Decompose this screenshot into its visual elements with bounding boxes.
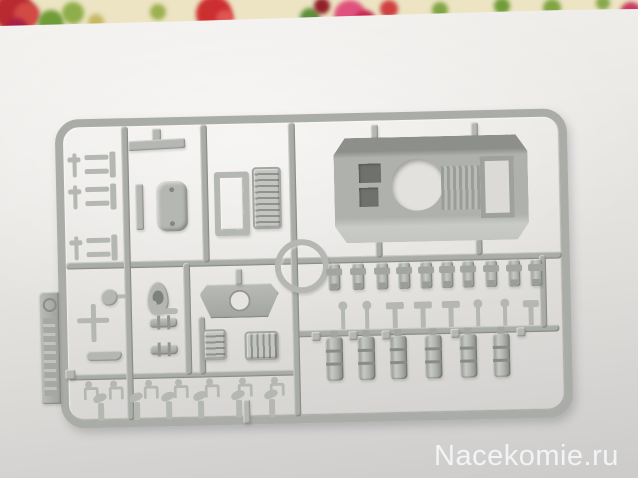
- pin-part: [338, 301, 349, 329]
- roller-wheel-part: [493, 333, 511, 377]
- sprue-gate-part: [471, 122, 478, 136]
- suspension-damper-part: [530, 259, 543, 286]
- suspension-damper-part: [420, 261, 433, 288]
- roller-wheel-part: [425, 334, 443, 378]
- flower-blob: [62, 2, 84, 24]
- bracket-part: [86, 234, 118, 261]
- cap-part: [386, 302, 405, 328]
- suspension-damper-part: [352, 263, 365, 290]
- sprue-stub-part: [65, 369, 75, 379]
- tow-bar-part: [86, 350, 122, 361]
- suspension-damper-part: [485, 260, 498, 287]
- flower-blob: [596, 0, 610, 10]
- frame-opening-part: [214, 171, 250, 236]
- sprue-stub-part: [381, 330, 390, 339]
- cylinder-part: [150, 344, 178, 355]
- engine-grille-part: [244, 331, 279, 361]
- tow-hook-part: [69, 236, 83, 260]
- tow-hook-part: [68, 185, 82, 209]
- tow-shackle-part: [106, 380, 120, 397]
- roller-wheel-part: [390, 335, 408, 379]
- turret-ring-hole: [391, 158, 444, 211]
- suspension-damper-part: [508, 259, 521, 286]
- sprue-stub-part: [516, 327, 525, 336]
- exhaust-tube-part: [151, 303, 178, 315]
- engine-deck-ribs: [441, 165, 484, 210]
- hatch-opening: [359, 188, 378, 207]
- watermark-text: Nacekomie.ru: [434, 440, 619, 473]
- sprue-gate-part: [243, 399, 251, 423]
- pin-part: [362, 301, 373, 329]
- engine-grille-part: [202, 329, 227, 361]
- strip-part: [135, 184, 144, 230]
- sprue-gate-part: [371, 125, 378, 139]
- flower-blob: [150, 4, 166, 20]
- suspension-damper-part: [376, 262, 389, 289]
- hull-plate-part: [199, 283, 279, 319]
- sprue-runner: [475, 238, 482, 255]
- engine-grille-part: [252, 167, 282, 230]
- periscope-part: [160, 394, 177, 419]
- sprue-gate-part: [235, 269, 242, 285]
- axle-cross-part: [77, 304, 110, 343]
- suspension-damper-part: [398, 262, 411, 289]
- photo-scene: Nacekomie.ru: [0, 0, 638, 478]
- cylinder-part: [149, 317, 177, 328]
- bracket-part: [85, 183, 117, 210]
- model-kit-sprue: [55, 108, 574, 429]
- bracket-part: [84, 151, 116, 178]
- periscope-part: [263, 392, 280, 417]
- engine-deck-opening: [479, 155, 514, 218]
- hatch-opening: [359, 163, 381, 182]
- cap-part: [414, 301, 433, 327]
- sprue-runner: [375, 240, 382, 257]
- brand-tab-part: [38, 292, 61, 404]
- sprue-stub-part: [348, 331, 357, 340]
- suspension-damper-part: [441, 261, 454, 288]
- roller-wheel-part: [326, 336, 344, 380]
- sprue-stub-part: [311, 332, 320, 341]
- tow-hook-part: [67, 153, 81, 177]
- periscope-part: [92, 396, 109, 421]
- suspension-damper-part: [328, 263, 341, 290]
- roller-wheel-part: [358, 336, 376, 380]
- sprue-stub-part: [450, 329, 459, 338]
- hatch-panel-part: [156, 181, 188, 232]
- tow-shackle-part: [141, 380, 155, 397]
- roller-wheel-part: [460, 333, 478, 377]
- cap-part: [523, 300, 540, 325]
- pin-part: [500, 299, 511, 326]
- flower-blob: [314, 0, 330, 14]
- suspension-damper-part: [462, 260, 475, 287]
- cap-part: [442, 301, 461, 327]
- periscope-part: [128, 395, 145, 420]
- pin-part: [473, 299, 484, 326]
- periscope-part: [192, 393, 209, 418]
- tank-upper-hull-part: [333, 134, 529, 243]
